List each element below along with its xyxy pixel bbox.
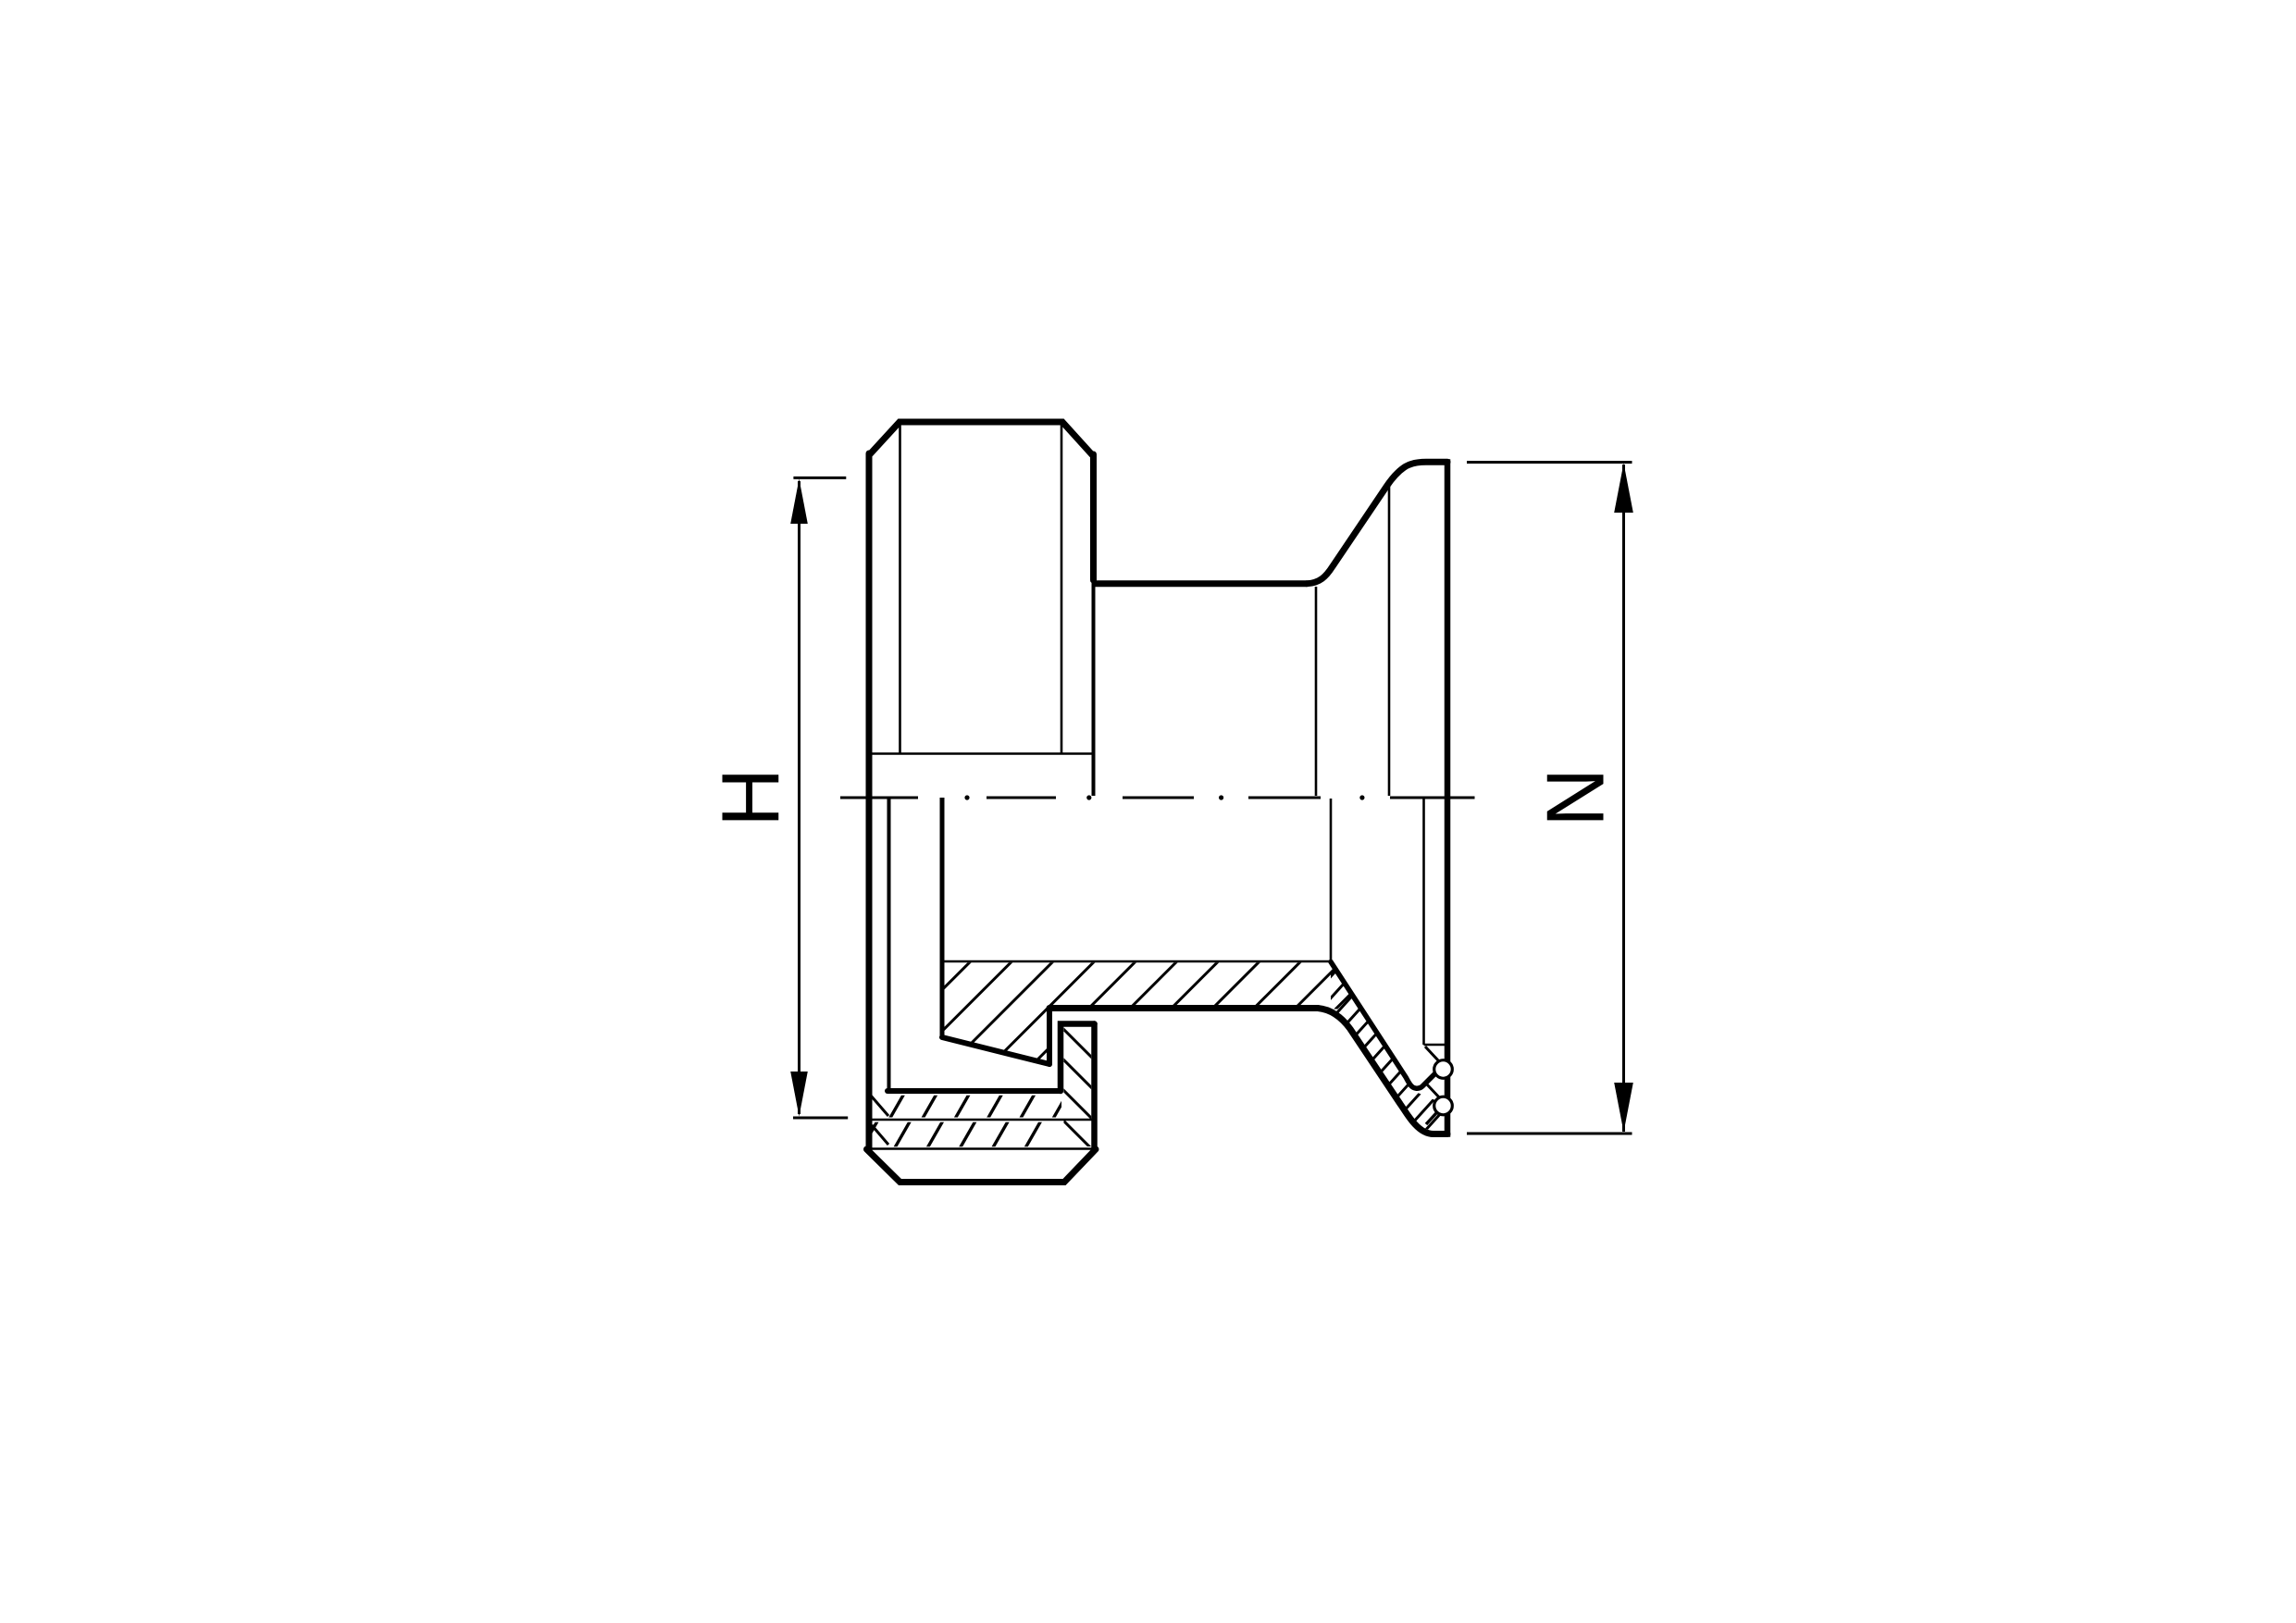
svg-text:N: N <box>1530 768 1621 827</box>
svg-text:H: H <box>704 768 796 827</box>
